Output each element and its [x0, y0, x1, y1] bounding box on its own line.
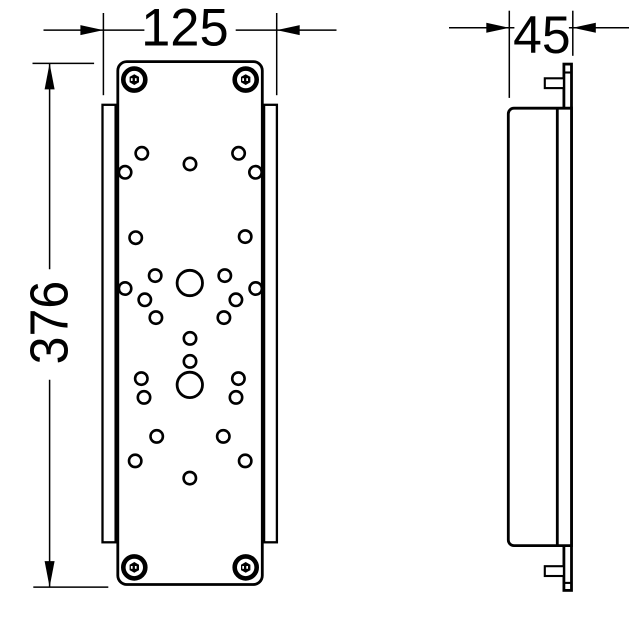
- svg-text:45: 45: [513, 6, 571, 65]
- svg-text:376: 376: [20, 281, 79, 365]
- svg-text:125: 125: [141, 0, 229, 58]
